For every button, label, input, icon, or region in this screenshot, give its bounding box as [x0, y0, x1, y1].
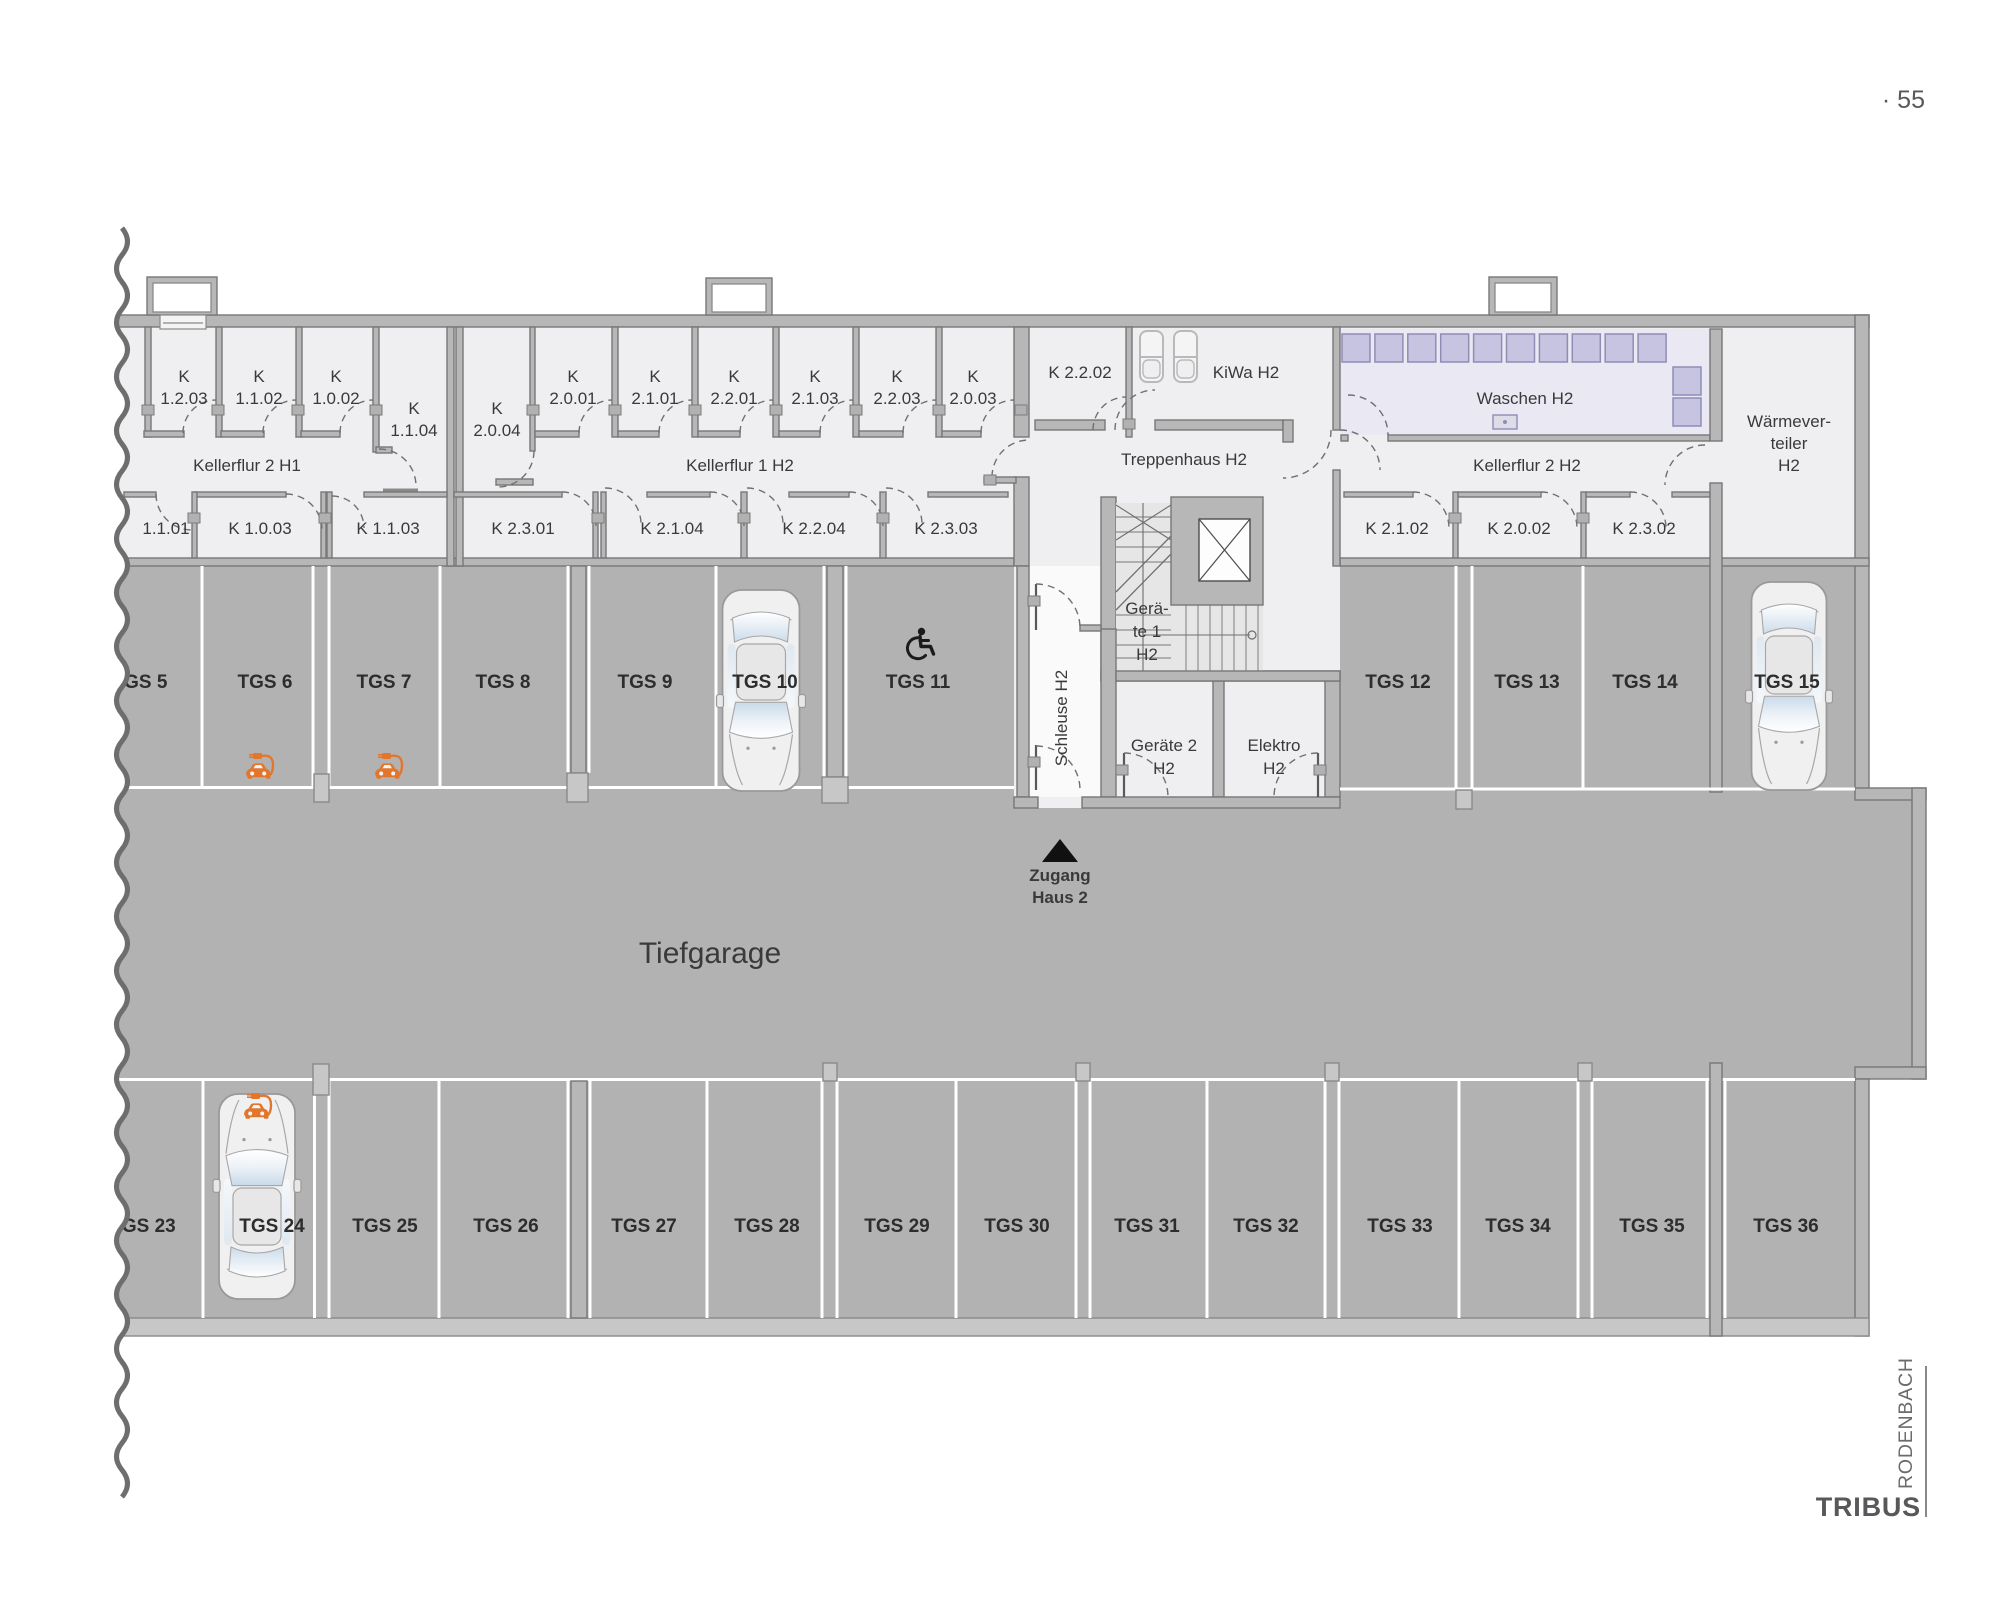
svg-text:Treppenhaus H2: Treppenhaus H2: [1121, 450, 1247, 469]
svg-text:K: K: [178, 367, 190, 386]
svg-text:K 2.1.02: K 2.1.02: [1365, 519, 1428, 538]
svg-text:2.1.03: 2.1.03: [791, 389, 838, 408]
svg-text:Kellerflur 2 H2: Kellerflur 2 H2: [1473, 456, 1581, 475]
svg-text:Geräte 2: Geräte 2: [1131, 736, 1197, 755]
svg-text:TGS 32: TGS 32: [1233, 1216, 1298, 1237]
svg-text:TGS 25: TGS 25: [352, 1216, 418, 1237]
svg-text:2.0.01: 2.0.01: [549, 389, 596, 408]
svg-text:Kellerflur 1 H2: Kellerflur 1 H2: [686, 456, 794, 475]
svg-text:1.0.02: 1.0.02: [312, 389, 359, 408]
svg-text:TGS 6: TGS 6: [238, 672, 293, 693]
svg-text:K: K: [491, 399, 503, 418]
svg-text:Haus 2: Haus 2: [1032, 888, 1088, 907]
svg-text:K 2.0.02: K 2.0.02: [1487, 519, 1550, 538]
svg-text:Zugang: Zugang: [1029, 866, 1090, 885]
svg-text:2.2.03: 2.2.03: [873, 389, 920, 408]
svg-text:1.2.03: 1.2.03: [160, 389, 207, 408]
svg-text:K 2.3.03: K 2.3.03: [914, 519, 977, 538]
svg-text:TRIBUS: TRIBUS: [1816, 1492, 1921, 1522]
svg-text:Schleuse H2: Schleuse H2: [1052, 670, 1071, 766]
svg-text:K: K: [967, 367, 979, 386]
svg-text:TGS 34: TGS 34: [1485, 1216, 1551, 1237]
svg-text:K 2.2.04: K 2.2.04: [782, 519, 845, 538]
svg-text:teiler: teiler: [1771, 434, 1808, 453]
svg-text:Elektro: Elektro: [1248, 736, 1301, 755]
svg-text:K: K: [809, 367, 821, 386]
svg-text:TGS 27: TGS 27: [611, 1216, 676, 1237]
svg-text:1.1.01: 1.1.01: [142, 519, 189, 538]
svg-text:TGS 30: TGS 30: [984, 1216, 1049, 1237]
svg-text:TGS 36: TGS 36: [1753, 1216, 1818, 1237]
svg-text:K: K: [728, 367, 740, 386]
svg-text:TGS 29: TGS 29: [864, 1216, 929, 1237]
svg-text:2.0.04: 2.0.04: [473, 421, 520, 440]
svg-text:K 2.3.01: K 2.3.01: [491, 519, 554, 538]
svg-text:K 2.3.02: K 2.3.02: [1612, 519, 1675, 538]
svg-text:TGS 7: TGS 7: [357, 672, 412, 693]
svg-text:TGS 11: TGS 11: [886, 672, 951, 693]
svg-text:K 2.2.02: K 2.2.02: [1048, 363, 1111, 382]
svg-text:TGS 35: TGS 35: [1619, 1216, 1685, 1237]
svg-text:TGS 10: TGS 10: [732, 672, 797, 693]
svg-text:TGS 31: TGS 31: [1114, 1216, 1180, 1237]
svg-text:Kellerflur 2 H1: Kellerflur 2 H1: [193, 456, 301, 475]
svg-text:K 1.1.03: K 1.1.03: [356, 519, 419, 538]
svg-text:TGS 33: TGS 33: [1367, 1216, 1432, 1237]
svg-text:TGS 15: TGS 15: [1754, 672, 1820, 693]
svg-text:Gerä-: Gerä-: [1125, 599, 1168, 618]
svg-text:H2: H2: [1263, 759, 1285, 778]
svg-text:Tiefgarage: Tiefgarage: [639, 937, 781, 970]
svg-text:2.0.03: 2.0.03: [949, 389, 996, 408]
svg-text:H2: H2: [1153, 759, 1175, 778]
svg-text:Wärmever-: Wärmever-: [1747, 412, 1831, 431]
svg-text:K 1.0.03: K 1.0.03: [228, 519, 291, 538]
svg-text:TGS 14: TGS 14: [1612, 672, 1678, 693]
svg-text:TGS 28: TGS 28: [734, 1216, 799, 1237]
svg-text:2.2.01: 2.2.01: [710, 389, 757, 408]
svg-text:H2: H2: [1778, 456, 1800, 475]
svg-text:te 1: te 1: [1133, 622, 1161, 641]
svg-text:RODENBACH: RODENBACH: [1895, 1357, 1917, 1489]
svg-text:K 2.1.04: K 2.1.04: [640, 519, 703, 538]
svg-text:TGS 13: TGS 13: [1494, 672, 1559, 693]
svg-text:K: K: [408, 399, 420, 418]
svg-text:TGS 8: TGS 8: [476, 672, 531, 693]
svg-text:KiWa H2: KiWa H2: [1213, 363, 1279, 382]
svg-text:TGS 24: TGS 24: [239, 1216, 305, 1237]
svg-text:H2: H2: [1136, 645, 1158, 664]
svg-text:K: K: [891, 367, 903, 386]
svg-text:TGS 26: TGS 26: [473, 1216, 538, 1237]
svg-text:· 55: · 55: [1882, 86, 1925, 114]
svg-text:1.1.02: 1.1.02: [235, 389, 282, 408]
svg-text:TGS 12: TGS 12: [1365, 672, 1430, 693]
svg-text:K: K: [253, 367, 265, 386]
svg-text:Waschen H2: Waschen H2: [1477, 389, 1574, 408]
svg-text:1.1.04: 1.1.04: [390, 421, 437, 440]
svg-text:2.1.01: 2.1.01: [631, 389, 678, 408]
svg-text:K: K: [330, 367, 342, 386]
svg-text:TGS 9: TGS 9: [618, 672, 673, 693]
svg-text:K: K: [567, 367, 579, 386]
svg-text:K: K: [649, 367, 661, 386]
